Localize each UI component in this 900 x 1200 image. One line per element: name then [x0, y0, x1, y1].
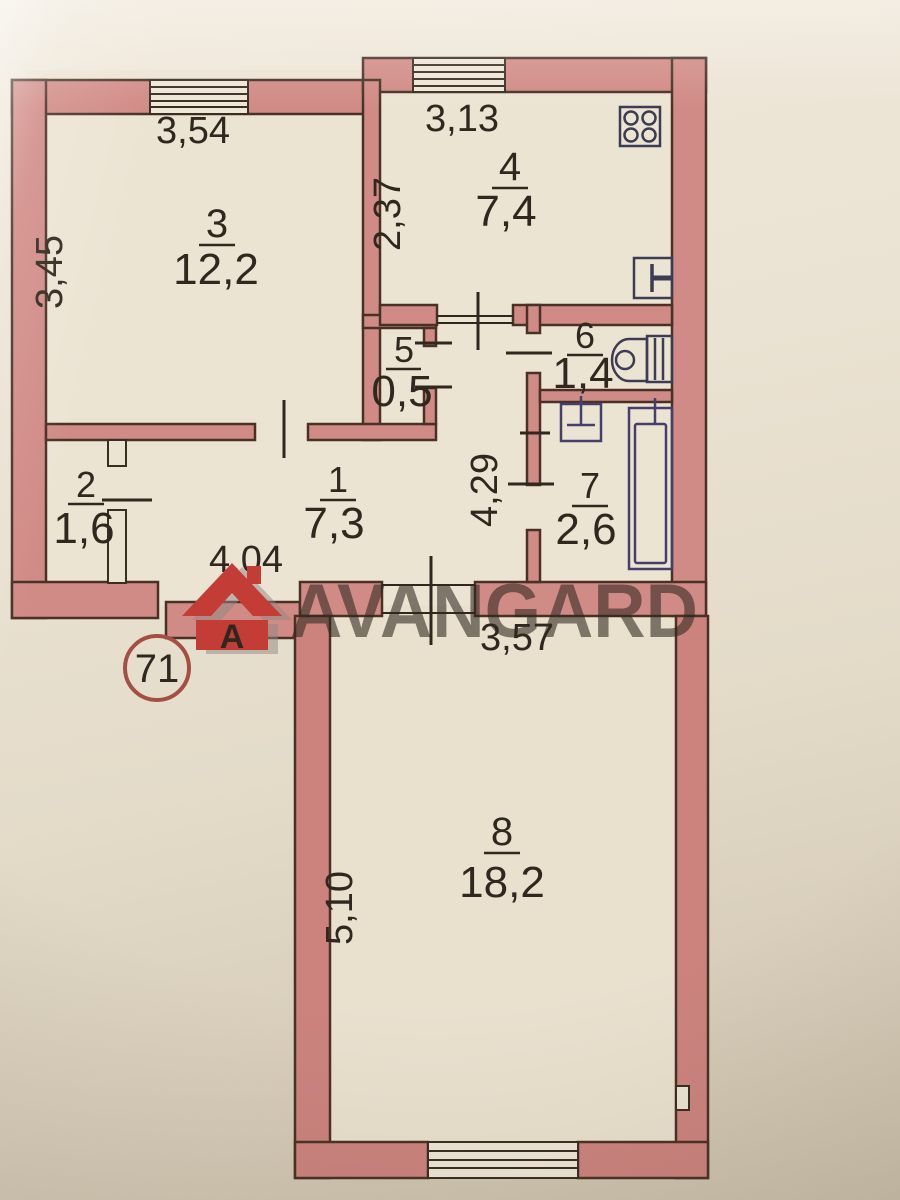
hall-top-wall-left [46, 424, 255, 440]
room8-bottom-wall-right [578, 1142, 708, 1178]
window-room4 [413, 58, 505, 92]
dim-room3-depth: 3,45 [29, 235, 71, 309]
svg-text:2: 2 [76, 464, 96, 505]
svg-text:7: 7 [580, 465, 600, 506]
floor-plan-drawing: 3,54 3,13 3,45 2,37 4,29 4,04 3,57 5,10 … [0, 0, 900, 1200]
svg-text:12,2: 12,2 [173, 245, 259, 294]
hall-top-wall-right [308, 424, 436, 440]
svg-text:8: 8 [491, 810, 513, 854]
svg-text:1,4: 1,4 [552, 349, 613, 398]
svg-text:5: 5 [394, 329, 414, 370]
kitchen-bottom-wall-left [380, 305, 437, 325]
logo-letter: A [220, 618, 245, 656]
room8-wall-notch [676, 1086, 689, 1110]
hall-right-wall-a [527, 305, 540, 333]
svg-text:3: 3 [206, 202, 228, 246]
svg-text:0,5: 0,5 [371, 367, 432, 416]
svg-text:1: 1 [328, 459, 348, 500]
svg-text:2,6: 2,6 [555, 505, 616, 554]
svg-text:4: 4 [499, 145, 521, 189]
window-room8 [428, 1142, 578, 1178]
dim-room4-depth: 2,37 [367, 177, 409, 251]
left-wall [12, 80, 46, 618]
hall-right-wall-b [527, 373, 540, 485]
badge-number: 71 [135, 647, 180, 691]
dim-room8-depth: 5,10 [319, 871, 361, 945]
room2-right-wall-a [108, 440, 126, 466]
room8-bottom-wall-left [295, 1142, 428, 1178]
svg-text:18,2: 18,2 [459, 858, 545, 907]
unit-number-badge: 71 [125, 636, 189, 700]
floor-plan-photo: 3,54 3,13 3,45 2,37 4,29 4,04 3,57 5,10 … [0, 0, 900, 1200]
window-room3 [150, 80, 248, 114]
svg-text:7,4: 7,4 [475, 187, 536, 236]
svg-text:7,3: 7,3 [303, 499, 364, 548]
avangard-watermark: AVANGARD [290, 569, 698, 654]
dim-hall-depth: 4,29 [464, 453, 506, 527]
bottom-wall-a [12, 582, 158, 618]
right-wall-upper [672, 58, 706, 616]
svg-text:1,6: 1,6 [53, 504, 114, 553]
dim-room4-width: 3,13 [425, 98, 499, 140]
dim-room3-width: 3,54 [156, 110, 230, 152]
